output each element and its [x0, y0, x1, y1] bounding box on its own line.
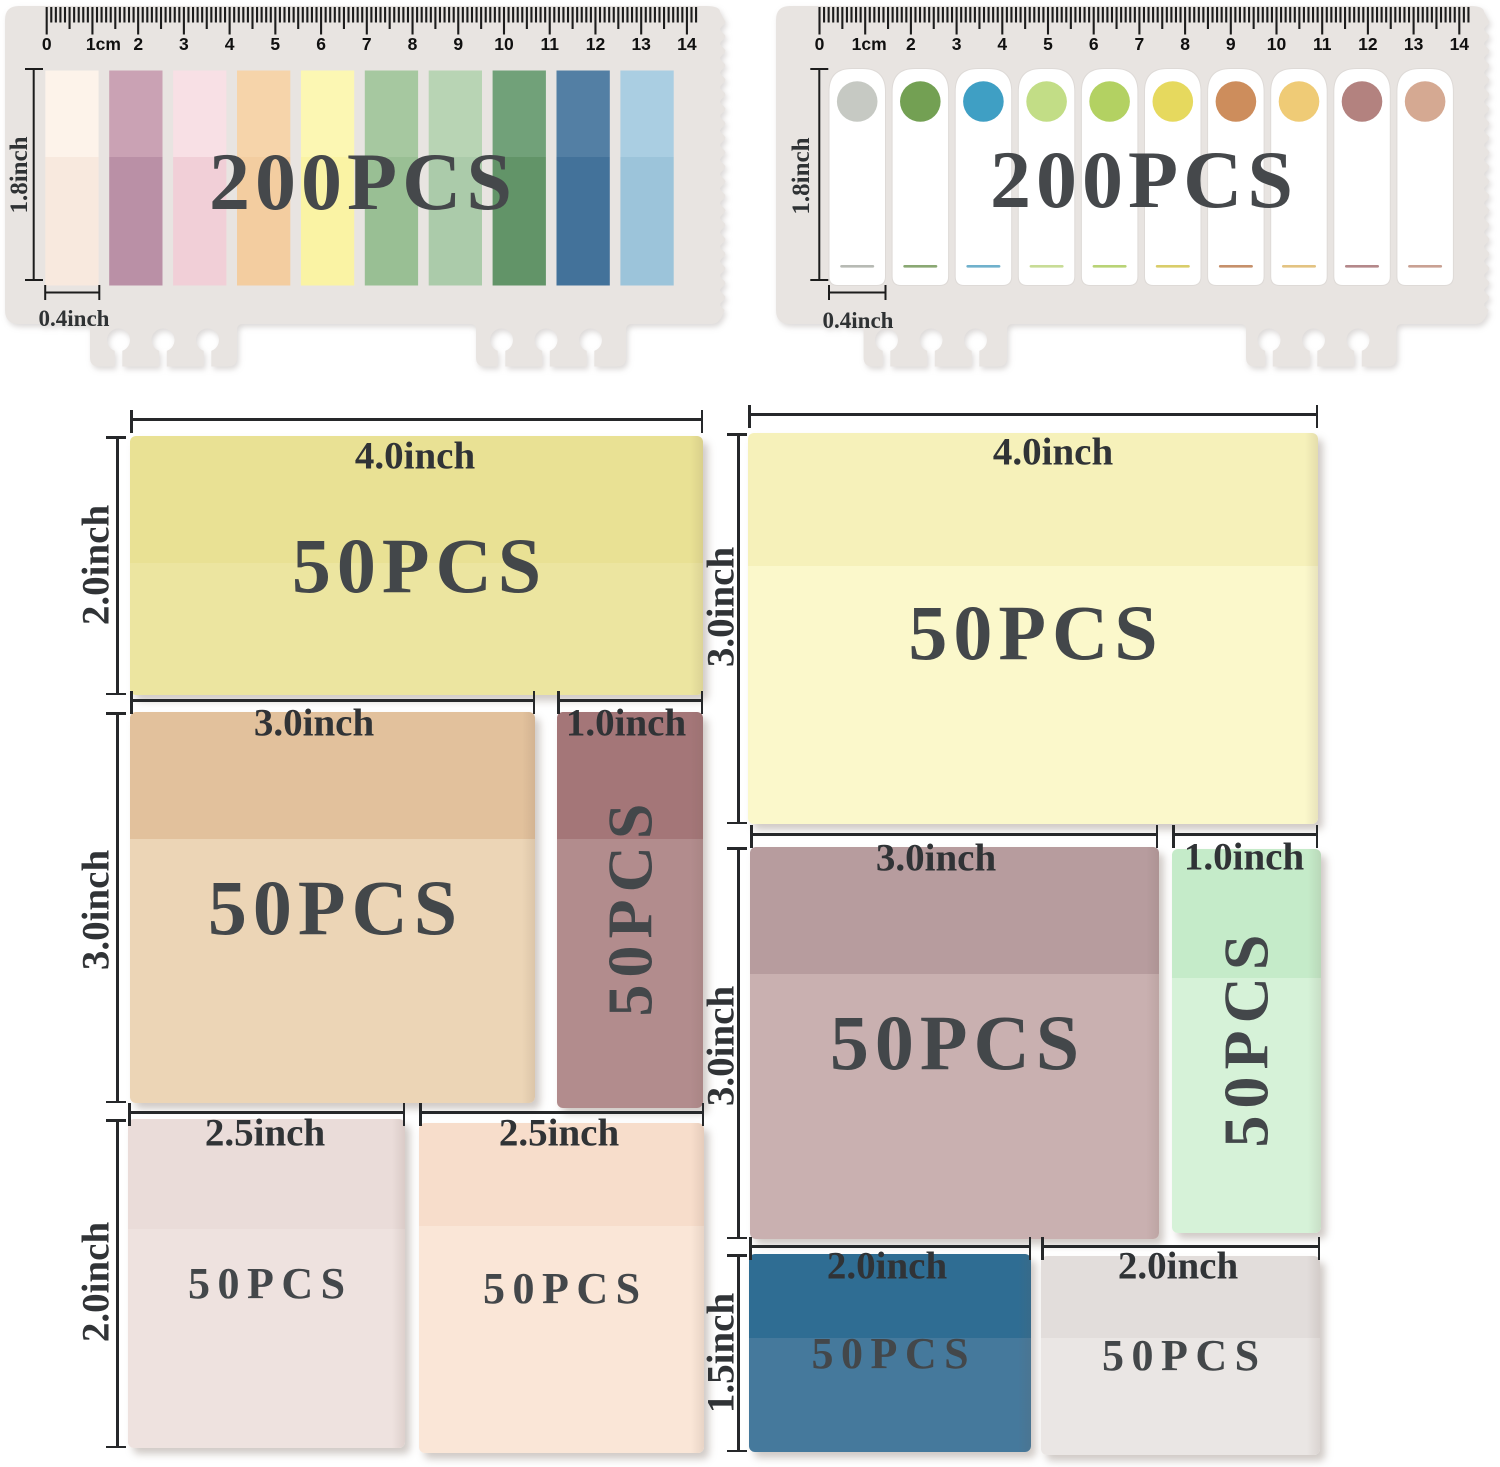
svg-text:0.4inch: 0.4inch: [39, 306, 110, 331]
svg-text:11: 11: [1313, 34, 1332, 54]
svg-text:2: 2: [906, 34, 916, 54]
svg-text:10: 10: [1267, 34, 1287, 54]
svg-text:7: 7: [1135, 34, 1145, 54]
svg-text:3: 3: [952, 34, 962, 54]
svg-text:8: 8: [408, 34, 418, 54]
svg-text:1.8inch: 1.8inch: [788, 137, 815, 214]
svg-text:5: 5: [270, 34, 280, 54]
svg-text:10: 10: [494, 34, 514, 54]
svg-text:7: 7: [362, 34, 372, 54]
svg-text:4: 4: [997, 34, 1007, 54]
svg-text:9: 9: [453, 34, 463, 54]
svg-text:9: 9: [1226, 34, 1236, 54]
svg-text:200PCS: 200PCS: [990, 134, 1298, 225]
svg-text:1.8inch: 1.8inch: [6, 136, 33, 213]
svg-text:13: 13: [631, 34, 651, 54]
svg-text:0: 0: [815, 34, 825, 54]
svg-text:11: 11: [540, 34, 559, 54]
svg-text:1cm: 1cm: [852, 34, 887, 54]
svg-text:12: 12: [1358, 34, 1378, 54]
svg-text:0.4inch: 0.4inch: [823, 308, 894, 333]
svg-text:14: 14: [677, 34, 697, 54]
svg-text:12: 12: [586, 34, 606, 54]
svg-text:3: 3: [179, 34, 189, 54]
svg-text:1cm: 1cm: [86, 34, 121, 54]
svg-text:8: 8: [1180, 34, 1190, 54]
svg-text:4: 4: [225, 34, 235, 54]
svg-text:6: 6: [316, 34, 326, 54]
svg-text:2: 2: [133, 34, 143, 54]
svg-text:6: 6: [1089, 34, 1099, 54]
svg-text:5: 5: [1043, 34, 1053, 54]
svg-text:14: 14: [1450, 34, 1470, 54]
svg-text:0: 0: [42, 34, 52, 54]
svg-text:13: 13: [1404, 34, 1424, 54]
svg-text:200PCS: 200PCS: [209, 136, 517, 227]
